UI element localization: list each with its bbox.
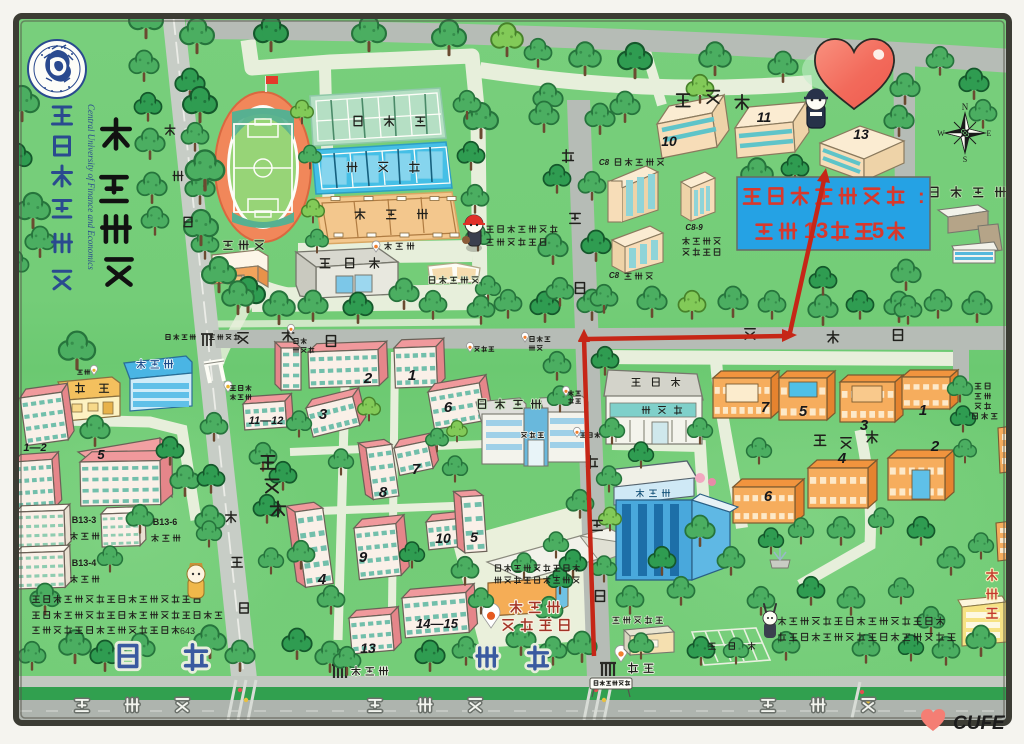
svg-text:5: 5 xyxy=(872,218,884,243)
svg-text:2: 2 xyxy=(930,438,940,455)
svg-text:7: 7 xyxy=(412,461,421,478)
svg-text:13: 13 xyxy=(853,126,869,142)
svg-text:C8-9: C8-9 xyxy=(685,223,703,232)
svg-text:Central University of Finance: Central University of Finance and Econom… xyxy=(86,104,96,270)
svg-text:B13-3: B13-3 xyxy=(72,515,97,525)
svg-text:4: 4 xyxy=(837,450,847,467)
svg-text:7: 7 xyxy=(761,399,770,416)
svg-text:5: 5 xyxy=(470,529,478,545)
svg-text:5: 5 xyxy=(799,403,808,420)
svg-text:4: 4 xyxy=(317,571,327,588)
svg-text:5: 5 xyxy=(97,447,105,462)
svg-text:10: 10 xyxy=(435,530,451,546)
svg-text:1—2: 1—2 xyxy=(23,442,46,454)
svg-text:2: 2 xyxy=(363,370,373,387)
svg-text:6: 6 xyxy=(764,488,773,505)
svg-text:3: 3 xyxy=(319,406,328,423)
svg-text:13: 13 xyxy=(360,640,376,656)
svg-text:6: 6 xyxy=(444,399,453,416)
svg-text:N: N xyxy=(962,102,969,112)
svg-text:9: 9 xyxy=(359,549,368,566)
svg-text:B13-6: B13-6 xyxy=(153,517,178,527)
svg-text:1: 1 xyxy=(408,367,416,384)
svg-text::: : xyxy=(918,186,925,208)
svg-text:3: 3 xyxy=(860,417,869,434)
svg-text:11: 11 xyxy=(757,109,772,125)
svg-text:CUFE: CUFE xyxy=(953,713,1006,734)
svg-text:B13-4: B13-4 xyxy=(72,558,97,568)
svg-text:10: 10 xyxy=(661,133,677,149)
svg-text:E: E xyxy=(987,129,992,138)
svg-text:643: 643 xyxy=(180,626,195,636)
svg-text:8: 8 xyxy=(379,484,388,501)
svg-text:C8: C8 xyxy=(609,271,620,280)
svg-text:14—15: 14—15 xyxy=(416,616,459,631)
svg-text:11—12: 11—12 xyxy=(249,415,284,427)
svg-text:1: 1 xyxy=(919,402,927,419)
svg-text:W: W xyxy=(937,129,945,138)
svg-text:C8: C8 xyxy=(599,158,610,167)
svg-text:S: S xyxy=(963,155,967,164)
